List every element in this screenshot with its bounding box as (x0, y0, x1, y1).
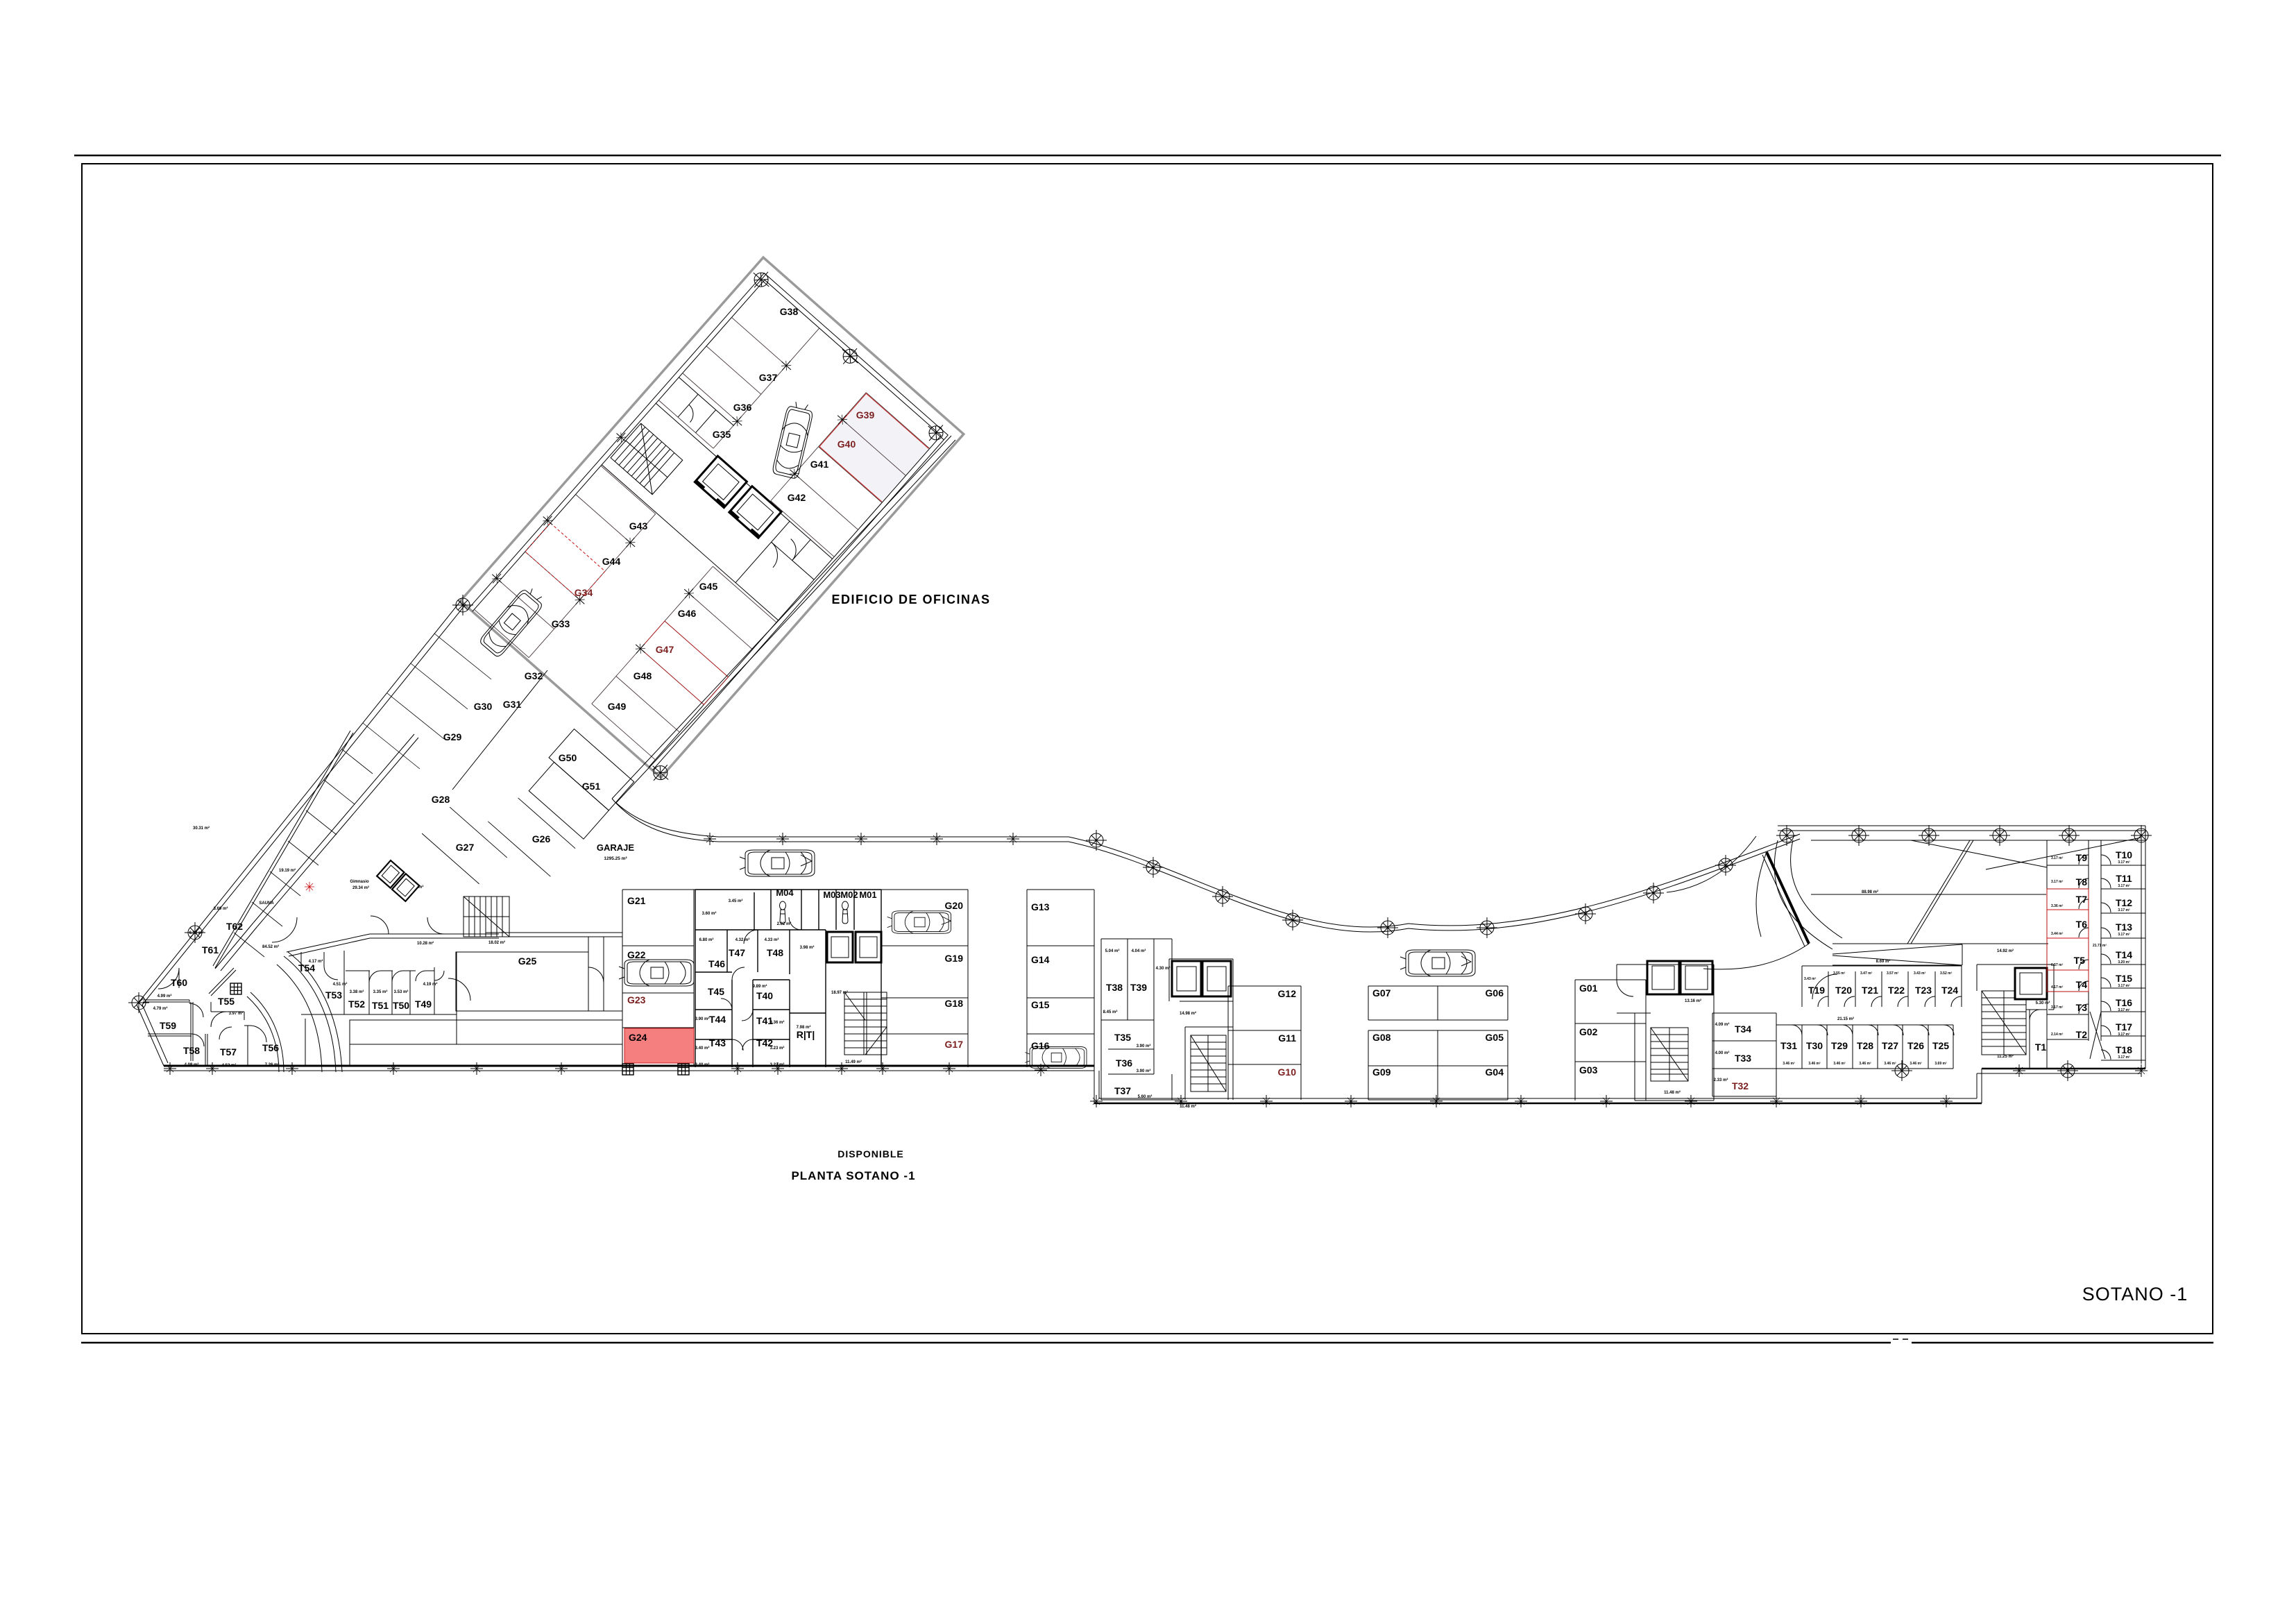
svg-text:G33: G33 (552, 618, 570, 629)
svg-text:3.46 m²: 3.46 m² (1808, 1062, 1821, 1066)
svg-text:G25: G25 (518, 955, 537, 967)
svg-text:G31: G31 (503, 699, 522, 710)
svg-text:3.17 m²: 3.17 m² (2118, 908, 2130, 912)
svg-text:7.98 m²: 7.98 m² (797, 1025, 811, 1030)
svg-text:T39: T39 (1130, 982, 1147, 993)
svg-text:T53: T53 (325, 989, 342, 1001)
svg-text:G45: G45 (699, 581, 718, 592)
svg-text:T60: T60 (171, 977, 187, 988)
svg-text:T51: T51 (372, 1000, 389, 1011)
svg-text:T15: T15 (2116, 973, 2132, 984)
svg-text:T38: T38 (1106, 982, 1123, 993)
svg-text:3.57 m²: 3.57 m² (1887, 971, 1899, 976)
svg-text:1295.25 m²: 1295.25 m² (604, 856, 627, 861)
svg-text:G43: G43 (629, 520, 648, 532)
svg-text:PLANTA SOTANO -1: PLANTA SOTANO -1 (791, 1169, 915, 1182)
svg-text:T28: T28 (1857, 1040, 1873, 1051)
svg-text:G27: G27 (456, 842, 475, 853)
svg-text:G37: G37 (759, 372, 778, 383)
svg-text:18.02 m²: 18.02 m² (488, 940, 505, 945)
svg-text:3.43 m²: 3.43 m² (1914, 971, 1926, 976)
svg-text:T24: T24 (1941, 985, 1958, 996)
svg-text:2.33 m²: 2.33 m² (1714, 1078, 1728, 1082)
svg-text:SAUNA: SAUNA (259, 901, 274, 906)
svg-text:4.00 m²: 4.00 m² (1715, 1051, 1730, 1055)
svg-text:10.28 m²: 10.28 m² (417, 941, 434, 946)
svg-text:3.17 m²: 3.17 m² (2051, 856, 2064, 860)
svg-text:G11: G11 (1278, 1033, 1296, 1044)
svg-text:G47: G47 (656, 644, 674, 655)
svg-text:T19: T19 (1808, 985, 1825, 996)
svg-text:T29: T29 (1831, 1040, 1848, 1051)
svg-text:G03: G03 (1579, 1064, 1598, 1076)
svg-text:6.80 m²: 6.80 m² (699, 937, 714, 942)
svg-text:DISPONIBLE: DISPONIBLE (837, 1148, 904, 1159)
svg-text:3.46 m²: 3.46 m² (1859, 1062, 1871, 1066)
svg-text:T32: T32 (1732, 1080, 1749, 1091)
svg-text:G02: G02 (1579, 1026, 1598, 1037)
svg-text:5.30 m²: 5.30 m² (2036, 1001, 2050, 1005)
svg-text:3.46 m²: 3.46 m² (1910, 1062, 1922, 1066)
svg-text:4.33 m²: 4.33 m² (765, 937, 779, 942)
svg-text:3.90 m²: 3.90 m² (695, 1017, 710, 1021)
svg-text:G28: G28 (432, 794, 450, 805)
svg-text:21.71 m²: 21.71 m² (2093, 944, 2107, 948)
svg-text:88.98 m²: 88.98 m² (1862, 890, 1878, 894)
svg-text:3.46 m²: 3.46 m² (1783, 1062, 1795, 1066)
svg-text:T14: T14 (2116, 949, 2132, 960)
svg-text:T27: T27 (1882, 1040, 1898, 1051)
svg-text:T62: T62 (226, 921, 243, 932)
svg-text:T49: T49 (415, 999, 432, 1010)
svg-text:3.45 m²: 3.45 m² (729, 899, 743, 903)
svg-text:T57: T57 (220, 1046, 237, 1057)
svg-text:T58: T58 (183, 1045, 200, 1056)
svg-text:G05: G05 (1486, 1032, 1504, 1043)
svg-text:T61: T61 (202, 944, 219, 955)
svg-text:M01: M01 (859, 890, 876, 900)
svg-text:G48: G48 (633, 670, 652, 681)
svg-text:G39: G39 (856, 409, 875, 420)
svg-text:4.04 m²: 4.04 m² (1132, 949, 1146, 953)
svg-text:T12: T12 (2116, 897, 2132, 908)
svg-text:T23: T23 (1915, 985, 1932, 996)
svg-text:3.17 m²: 3.17 m² (2051, 1005, 2064, 1010)
svg-text:G51: G51 (582, 781, 601, 792)
svg-text:11.48 m²: 11.48 m² (1180, 1104, 1196, 1109)
svg-text:5.04 m²: 5.04 m² (1105, 949, 1120, 953)
svg-text:3.40 m²: 3.40 m² (695, 1062, 710, 1067)
svg-text:3.69 m²: 3.69 m² (1934, 1062, 1947, 1066)
svg-text:T44: T44 (709, 1014, 726, 1025)
svg-text:T22: T22 (1888, 985, 1905, 996)
svg-text:3.47 m²: 3.47 m² (1860, 971, 1873, 976)
svg-text:T33: T33 (1735, 1053, 1751, 1064)
svg-text:G49: G49 (608, 701, 627, 712)
svg-text:21.15 m²: 21.15 m² (1837, 1017, 1854, 1021)
svg-text:T26: T26 (1907, 1040, 1924, 1051)
svg-text:T25: T25 (1932, 1040, 1949, 1051)
svg-text:G26: G26 (532, 833, 551, 844)
svg-text:G21: G21 (627, 895, 646, 906)
svg-text:2.02 m²: 2.02 m² (777, 921, 792, 926)
svg-text:T45: T45 (708, 986, 724, 997)
svg-text:G08: G08 (1372, 1032, 1391, 1043)
svg-text:11.48 m²: 11.48 m² (1664, 1090, 1681, 1095)
svg-text:M04: M04 (776, 887, 794, 898)
svg-text:G09: G09 (1372, 1067, 1391, 1078)
svg-text:Gimnasio: Gimnasio (350, 880, 369, 884)
svg-text:T2: T2 (2076, 1029, 2088, 1040)
svg-text:4.17 m²: 4.17 m² (2051, 985, 2064, 989)
svg-text:5.60 m²: 5.60 m² (1138, 1094, 1153, 1099)
svg-text:T40: T40 (756, 990, 773, 1001)
svg-text:G44: G44 (602, 556, 621, 567)
svg-text:G16: G16 (1031, 1040, 1050, 1051)
svg-text:G17: G17 (945, 1039, 964, 1050)
svg-text:T5: T5 (2074, 955, 2086, 966)
svg-text:3.22 m²: 3.22 m² (770, 1062, 785, 1067)
svg-text:G24: G24 (629, 1032, 647, 1043)
svg-text:3.17 m²: 3.17 m² (2118, 984, 2130, 988)
svg-text:EDIFICIO DE OFICINAS: EDIFICIO DE OFICINAS (831, 593, 990, 606)
svg-text:T31: T31 (1780, 1040, 1797, 1051)
svg-text:G06: G06 (1486, 987, 1504, 999)
svg-text:G12: G12 (1278, 988, 1297, 999)
svg-text:T7: T7 (2076, 894, 2088, 905)
svg-text:T11: T11 (2116, 873, 2132, 884)
svg-text:G19: G19 (945, 953, 964, 964)
svg-text:G34: G34 (575, 587, 593, 598)
svg-text:G14: G14 (1031, 954, 1050, 965)
svg-text:M02: M02 (840, 890, 858, 900)
svg-text:8.45 m²: 8.45 m² (1103, 1010, 1118, 1014)
svg-text:9.89 m²: 9.89 m² (753, 984, 767, 989)
svg-text:3.17 m²: 3.17 m² (2118, 1055, 2130, 1060)
svg-text:4.32 m²: 4.32 m² (735, 937, 750, 942)
svg-text:4.99 m²: 4.99 m² (158, 994, 172, 999)
svg-text:G13: G13 (1031, 901, 1050, 912)
svg-text:T41: T41 (756, 1015, 773, 1026)
svg-text:3.17 m²: 3.17 m² (2118, 1008, 2130, 1012)
svg-text:G10: G10 (1278, 1067, 1297, 1078)
svg-text:6.57 m²: 6.57 m² (2051, 963, 2064, 967)
svg-text:T46: T46 (708, 958, 725, 969)
svg-text:G30: G30 (474, 701, 493, 712)
svg-text:3.69 m²: 3.69 m² (214, 906, 228, 911)
svg-text:T47: T47 (729, 947, 745, 958)
svg-text:3.43 m²: 3.43 m² (1804, 977, 1817, 981)
svg-text:T36: T36 (1116, 1057, 1132, 1069)
svg-text:G35: G35 (713, 429, 731, 440)
svg-text:T13: T13 (2116, 921, 2132, 933)
svg-text:T30: T30 (1806, 1040, 1823, 1051)
svg-text:11.25 m²: 11.25 m² (1997, 1054, 2014, 1059)
svg-text:3.17 m²: 3.17 m² (2118, 1033, 2130, 1037)
svg-text:G18: G18 (945, 998, 964, 1009)
svg-text:8.69 m²: 8.69 m² (1876, 959, 1891, 964)
svg-text:T48: T48 (767, 947, 783, 958)
svg-text:4.30 m²: 4.30 m² (1156, 966, 1171, 971)
svg-text:3.17 m²: 3.17 m² (2118, 860, 2130, 865)
svg-text:11.49 m²: 11.49 m² (845, 1060, 862, 1064)
svg-text:T43: T43 (709, 1037, 726, 1048)
svg-text:G22: G22 (627, 949, 646, 960)
svg-text:4.17 m²: 4.17 m² (309, 959, 323, 964)
svg-text:19.19 m²: 19.19 m² (279, 868, 296, 873)
svg-text:G40: G40 (837, 439, 856, 450)
svg-text:3.40 m²: 3.40 m² (695, 1046, 710, 1051)
svg-text:4.79 m²: 4.79 m² (153, 1006, 168, 1011)
svg-text:30.31 m²: 30.31 m² (193, 826, 210, 831)
svg-text:3.98 m²: 3.98 m² (800, 945, 815, 950)
svg-text:3.17 m²: 3.17 m² (2051, 880, 2064, 884)
svg-text:3.20 m²: 3.20 m² (2118, 960, 2130, 965)
svg-text:G46: G46 (678, 608, 697, 619)
svg-text:2.14 m²: 2.14 m² (2051, 1033, 2064, 1037)
svg-text:T34: T34 (1735, 1023, 1751, 1035)
svg-text:G50: G50 (559, 752, 577, 763)
svg-text:T55: T55 (218, 996, 235, 1007)
svg-text:3.53 m²: 3.53 m² (394, 989, 409, 994)
svg-text:SOTANO -1: SOTANO -1 (2082, 1284, 2188, 1305)
svg-text:G42: G42 (788, 492, 806, 503)
svg-text:T52: T52 (348, 999, 365, 1010)
svg-text:T21: T21 (1862, 985, 1878, 996)
svg-text:GARAJE: GARAJE (597, 842, 635, 853)
svg-text:G36: G36 (733, 402, 752, 413)
svg-text:4.51 m²: 4.51 m² (333, 982, 348, 987)
svg-text:T59: T59 (160, 1020, 176, 1031)
svg-text:G41: G41 (810, 459, 829, 470)
svg-text:3.60 m²: 3.60 m² (702, 911, 717, 916)
svg-text:14.92 m²: 14.92 m² (1997, 949, 2014, 953)
svg-text:G29: G29 (443, 731, 462, 742)
svg-text:13.16 m²: 13.16 m² (1685, 999, 1701, 1003)
svg-text:G07: G07 (1372, 987, 1391, 999)
svg-text:T50: T50 (393, 1000, 409, 1011)
svg-text:G01: G01 (1579, 983, 1598, 994)
svg-text:3.46 m²: 3.46 m² (1884, 1062, 1896, 1066)
svg-text:3.52 m²: 3.52 m² (1940, 971, 1953, 976)
svg-text:3.17 m²: 3.17 m² (2118, 884, 2130, 888)
svg-text:84.52 m²: 84.52 m² (262, 944, 279, 949)
svg-text:29.34 m²: 29.34 m² (352, 885, 369, 890)
svg-text:3.17 m²: 3.17 m² (2118, 933, 2130, 937)
svg-text:T10: T10 (2116, 849, 2132, 860)
svg-text:3.35 m²: 3.35 m² (373, 989, 388, 994)
svg-text:3.36 m²: 3.36 m² (2051, 904, 2064, 908)
svg-text:T37: T37 (1114, 1085, 1131, 1096)
svg-text:3.90 m²: 3.90 m² (1137, 1069, 1151, 1073)
svg-text:G38: G38 (780, 306, 799, 317)
svg-text:G23: G23 (627, 994, 646, 1005)
svg-text:T20: T20 (1835, 985, 1852, 996)
svg-text:G15: G15 (1031, 999, 1050, 1010)
svg-text:4.09 m²: 4.09 m² (1715, 1022, 1730, 1027)
svg-text:T17: T17 (2116, 1021, 2132, 1033)
svg-text:T42: T42 (756, 1037, 773, 1048)
svg-text:3.90 m²: 3.90 m² (1137, 1044, 1151, 1048)
svg-text:3.44 m²: 3.44 m² (2051, 932, 2064, 936)
svg-text:G04: G04 (1486, 1067, 1504, 1078)
svg-text:T18: T18 (2116, 1044, 2132, 1055)
svg-text:G20: G20 (945, 900, 964, 911)
svg-text:R|T|: R|T| (797, 1029, 815, 1040)
svg-text:T16: T16 (2116, 997, 2132, 1008)
svg-text:3.38 m²: 3.38 m² (350, 989, 364, 994)
svg-text:4.19 m²: 4.19 m² (423, 982, 438, 987)
svg-text:T35: T35 (1114, 1032, 1131, 1043)
svg-text:M03: M03 (823, 890, 840, 900)
svg-text:14.98 m²: 14.98 m² (1180, 1011, 1196, 1016)
svg-text:T1: T1 (2035, 1042, 2047, 1053)
svg-text:3.55 m²: 3.55 m² (1833, 971, 1846, 976)
svg-text:3.46 m²: 3.46 m² (1833, 1062, 1846, 1066)
